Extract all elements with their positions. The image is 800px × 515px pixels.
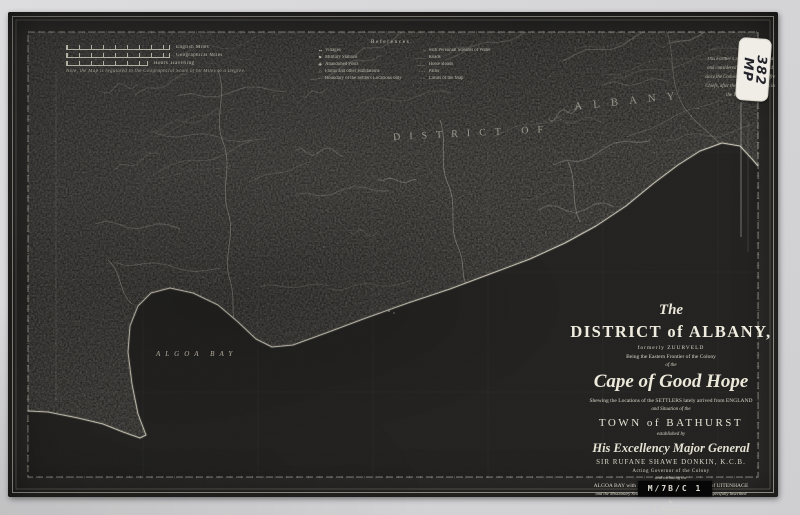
scale-bar-geographical-miles: Geographical Miles [66,53,296,58]
legend-row: ▪▪Villages [306,47,402,54]
abandoned-post-symbol: ✚ [306,61,322,68]
legend-label: with Perennial Streams of Water [429,47,491,54]
legend-label: Military Stations [325,54,357,61]
farm-symbol: ○ [306,68,322,75]
legend-row: ⚑Military Stations [306,54,402,61]
archive-sticker: 382 MP [735,37,772,102]
legend-row: ···Boundary of the Settlers Locations on… [306,75,402,82]
streams-symbol: ≈ [410,47,426,54]
cartouche-line: TOWN of BATHURST [556,418,786,430]
cartouche-line: The [556,303,786,319]
legend-row: ⋯Limits of the Map [410,75,491,82]
cartouche-line: of the [556,363,786,368]
legend-right-column: ≈with Perennial Streams of Water —·—Road… [410,47,491,82]
cartouche-line: Shewing the Locations of the SETTLERS la… [556,399,786,405]
scale-bar-english-miles: English Miles [66,45,296,50]
legend-row: ——Horse Roads [410,61,491,68]
scale-bar-label: Hours Travelling [154,61,194,66]
legend-label: Boundary of the Settlers Locations only [325,75,402,82]
cartouche-line: Acting Governor of the Colony [556,469,786,474]
boundary-symbol: ··· [306,75,322,82]
reference-code-box: M/7B/C 1 [638,481,712,496]
scale-note: Note, the Map is regulated to the Geogra… [66,69,296,74]
cartouche-line: by [556,500,786,505]
horse-roads-symbol: —— [410,61,426,68]
scale-bar-hours: Hours Travelling [66,61,296,66]
cartouche-author: J. Knobel. [556,507,786,513]
references-legend: References. ▪▪Villages ⚑Military Station… [306,39,478,82]
scale-bar-rule [66,61,148,66]
cartouche-line: and Situation of the [556,407,786,412]
reference-code: M/7B/C 1 [648,484,703,493]
label-algoa-bay: ALGOA BAY [156,350,237,358]
map-title: DISTRICT of ALBANY, [556,323,786,340]
cartouche-subtitle: Cape of Good Hope [556,372,786,392]
legend-row: ≈with Perennial Streams of Water [410,47,491,54]
legend-label: Horse Roads [429,61,454,68]
legend-label: Limits of the Map [429,75,464,82]
legend-label: Roads [429,54,441,61]
scale-bar-rule [66,53,170,58]
legend-row: - - -Paths [410,68,491,75]
paths-symbol: - - - [410,68,426,75]
military-station-symbol: ⚑ [306,54,322,61]
legend-title: References. [306,39,478,45]
legend-row: ✚Abandoned Posts [306,61,402,68]
legend-label: Farms and other Habitations [325,68,380,75]
scale-bar-label: Geographical Miles [176,53,223,58]
cartouche-line: formerly ZUURVELD [556,346,786,352]
cartouche-line: established by [556,432,786,437]
legend-row: ○Farms and other Habitations [306,68,402,75]
legend-label: Villages [325,47,341,54]
legend-label: Abandoned Posts [325,61,358,68]
villages-symbol: ▪▪ [306,47,322,54]
scale-bar-label: English Miles [176,45,209,50]
sticker-text: 382 MP [739,41,769,99]
photographed-archive-page: { "archive": { "sticker_line1": "MP", "s… [0,0,800,515]
legend-row: —·—Roads [410,54,491,61]
map-sheet: English Miles Geographical Miles Hours T… [8,12,778,497]
cartouche-line: SIR RUFANE SHAWE DONKIN, K.C.B. [556,459,786,466]
legend-left-column: ▪▪Villages ⚑Military Stations ✚Abandoned… [306,47,402,82]
roads-symbol: —·— [410,54,426,61]
scale-bars: English Miles Geographical Miles Hours T… [66,45,296,74]
scale-bar-rule [66,45,170,50]
cartouche-line: His Excellency Major General [556,442,786,455]
legend-label: Paths [429,68,439,75]
cartouche-line: Being the Eastern Frontier of the Colony [556,355,786,361]
map-limits-symbol: ⋯ [410,75,426,82]
